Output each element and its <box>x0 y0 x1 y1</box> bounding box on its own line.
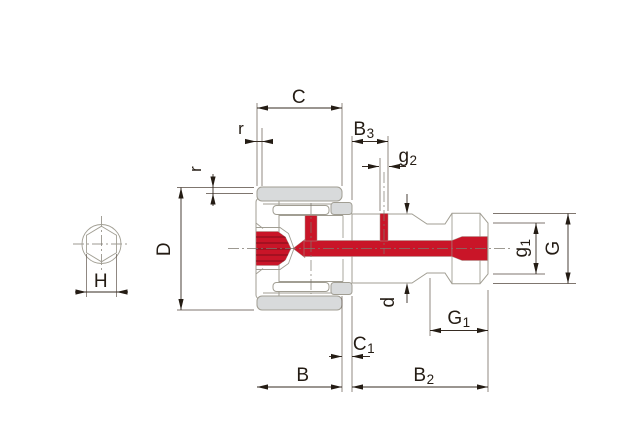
arrowhead <box>533 263 538 274</box>
needle-roller-bottom <box>273 283 329 292</box>
arrowhead <box>257 105 268 110</box>
label-d: d <box>378 296 399 307</box>
arrowhead <box>477 384 488 389</box>
arrowhead <box>210 177 215 188</box>
dim-g2: g2 <box>362 146 418 169</box>
dim-r-left: r <box>186 166 216 206</box>
label-H: H <box>94 271 108 292</box>
arrowhead <box>352 384 363 389</box>
arrowhead <box>404 283 409 294</box>
label-g2: g2 <box>398 146 417 168</box>
section-view <box>228 172 512 310</box>
label-B3: B3 <box>353 119 374 141</box>
dim-B: B <box>257 365 342 390</box>
arrowhead <box>262 139 273 144</box>
dim-D: D <box>154 188 184 311</box>
arrowhead <box>477 328 488 333</box>
arrowhead <box>533 223 538 234</box>
drawing-canvas: H <box>0 0 640 440</box>
arrowhead <box>331 105 342 110</box>
label-G1: G1 <box>447 308 470 330</box>
label-r-left: r <box>186 166 205 172</box>
dim-C: C <box>257 87 342 111</box>
label-C1: C1 <box>353 334 375 356</box>
arrowhead <box>565 214 570 225</box>
dim-B2: B2 <box>352 365 488 390</box>
outer-ring-top <box>257 187 342 201</box>
outer-ring-bottom <box>257 296 342 310</box>
arrowhead <box>245 139 256 144</box>
dim-r-top: r <box>238 119 273 144</box>
arrowhead <box>257 384 268 389</box>
arrowhead <box>210 194 215 205</box>
arrowhead <box>565 273 570 284</box>
arrowhead <box>331 384 342 389</box>
arrowhead <box>430 328 441 333</box>
side-plate-bottom <box>331 283 352 295</box>
label-g1: g1 <box>511 238 533 257</box>
arrowhead <box>331 354 342 359</box>
side-plate-top <box>331 203 352 215</box>
arrowhead <box>117 289 128 294</box>
label-B2: B2 <box>413 365 434 387</box>
label-G: G <box>543 240 564 255</box>
arrowhead <box>377 139 388 144</box>
arrowhead <box>404 203 409 214</box>
label-r-top: r <box>238 119 244 138</box>
dim-B3: B3 <box>352 119 388 144</box>
dim-G1: G1 <box>430 308 488 333</box>
arrowhead <box>76 289 87 294</box>
label-B: B <box>296 365 309 386</box>
dim-G: G <box>543 214 571 284</box>
arrowhead <box>178 299 183 310</box>
label-C: C <box>292 87 306 108</box>
arrowhead <box>178 188 183 199</box>
arrowhead <box>368 164 379 169</box>
technical-drawing: H <box>0 0 640 440</box>
dim-g1: g1 <box>511 223 539 274</box>
label-D: D <box>154 242 175 256</box>
needle-roller-top <box>273 206 329 215</box>
hex-end-view: H <box>73 216 130 297</box>
